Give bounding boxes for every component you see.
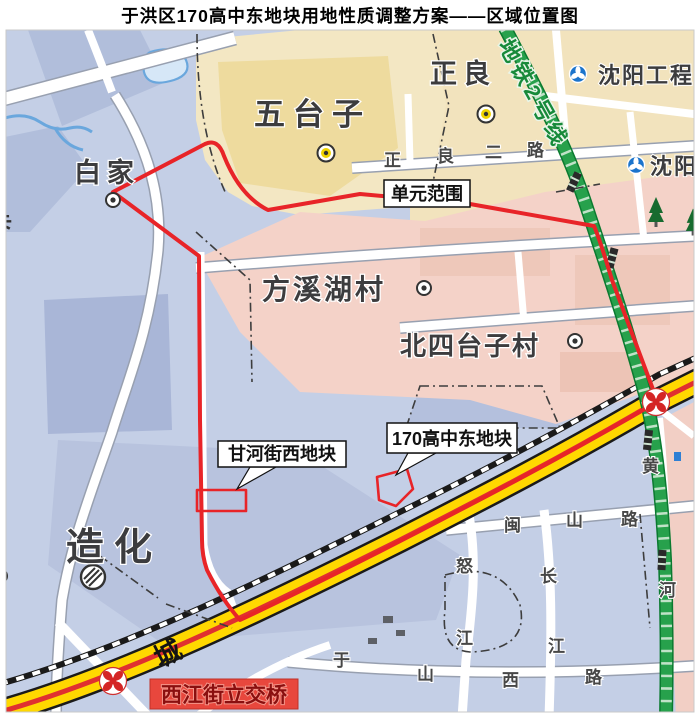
area-label-zaohua: 造化 (66, 527, 162, 569)
svg-text:于: 于 (333, 651, 350, 670)
svg-text:路: 路 (527, 140, 545, 160)
area-label-beisitaizicun: 北四台子村 (400, 331, 540, 361)
svg-text:西江街立交桥: 西江街立交桥 (161, 683, 288, 707)
blue-block (674, 452, 681, 461)
overpass-label: 西江街立交桥 (150, 679, 298, 709)
svg-text:江: 江 (548, 637, 565, 656)
marker-baijia (106, 193, 120, 207)
map-canvas: 白家 五台子 正良 方溪湖村 北四台子村 造化 卡 城 正 良 二 路 闽 山 … (0, 0, 700, 718)
svg-text:170高中东地块: 170高中东地块 (392, 428, 513, 449)
svg-text:西: 西 (502, 671, 519, 690)
metro-logo-icon (570, 66, 587, 83)
svg-text:二: 二 (485, 143, 502, 162)
marker-zhengliang (478, 106, 495, 123)
metro-station-shen: 沈阳 (650, 154, 698, 179)
svg-text:山: 山 (417, 665, 434, 684)
svg-text:河: 河 (659, 581, 676, 600)
marker-wutaizi (318, 145, 335, 162)
svg-text:甘河街西地块: 甘河街西地块 (228, 443, 337, 464)
svg-text:路: 路 (621, 509, 639, 529)
marker-fangxihucun (417, 281, 431, 295)
area-label-fangxihucun: 方溪湖村 (262, 273, 386, 305)
metro-station-gongcheng: 沈阳工程 (598, 63, 694, 88)
svg-text:江: 江 (456, 629, 473, 648)
svg-text:黄: 黄 (642, 456, 659, 476)
svg-text:怒: 怒 (456, 556, 473, 576)
svg-text:良: 良 (437, 146, 454, 166)
svg-text:长: 长 (540, 566, 558, 586)
svg-text:正: 正 (384, 151, 401, 170)
svg-text:单元范围: 单元范围 (391, 183, 463, 204)
metro-logo-icon-2 (628, 157, 645, 174)
area-label-baijia: 白家 (74, 157, 140, 188)
area-label-wutaizi: 五台子 (254, 97, 371, 132)
svg-text:山: 山 (566, 511, 583, 530)
area-label-zhengliang: 正良 (430, 58, 496, 89)
svg-text:闽: 闽 (504, 515, 521, 535)
callout-unit-scope: 单元范围 (384, 180, 470, 207)
marker-beisitaizicun (568, 334, 582, 348)
svg-text:路: 路 (585, 667, 603, 687)
